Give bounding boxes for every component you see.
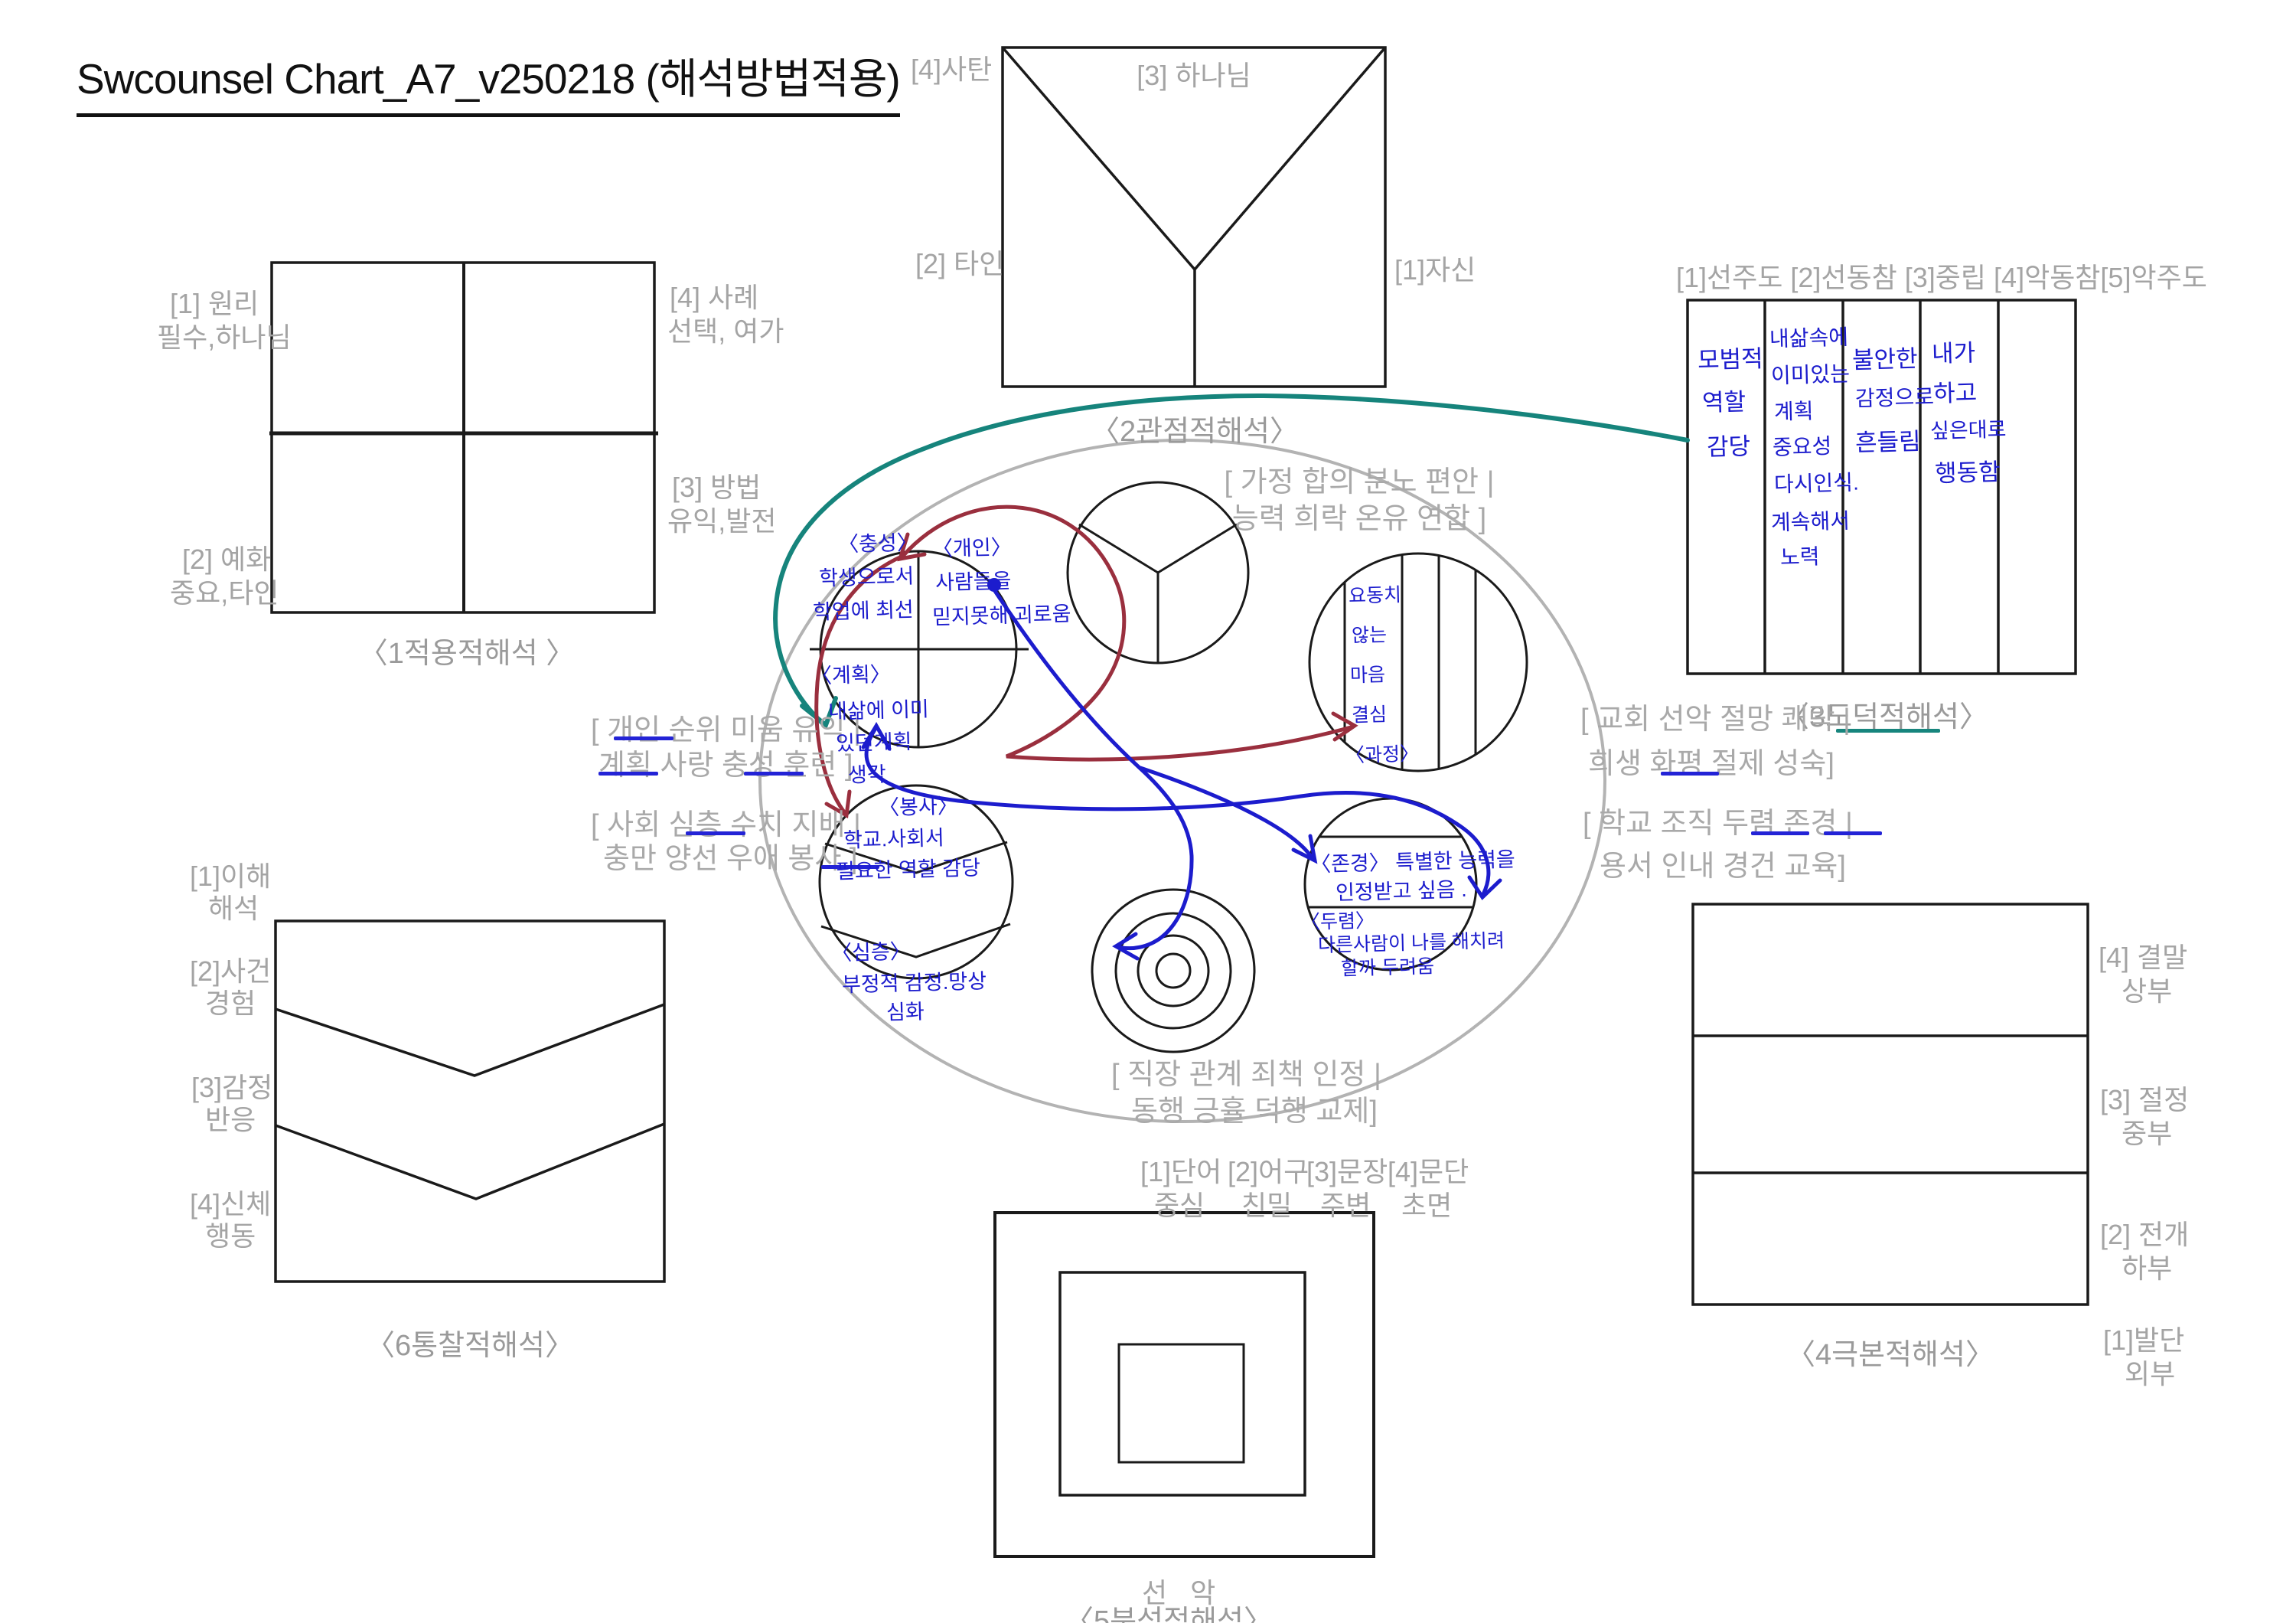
underline-jongyeong bbox=[1824, 831, 1882, 835]
d1-label-3b: 유익,발전 bbox=[667, 499, 776, 539]
d6-label-3b: 반응 bbox=[205, 1098, 256, 1138]
cB-bl-line: 내삶에 이미 bbox=[828, 692, 930, 724]
underline-gyehoek bbox=[598, 772, 658, 776]
ellipse-note-church-1: [ 교회 선악 절망 쾌락 | bbox=[1580, 695, 1851, 737]
cB-tl-line: 학생으로서 bbox=[819, 559, 915, 591]
d3-col4-line: 행동함 bbox=[1934, 452, 2001, 488]
cE-bot-line: 할까 두려움 bbox=[1341, 951, 1435, 981]
d3-col3-line: 감정으로 bbox=[1854, 380, 1934, 413]
d5-label-s3: 주변 bbox=[1320, 1184, 1371, 1223]
cE-mid-line: 인정받고 싶음 . bbox=[1336, 873, 1468, 906]
cC-bot-line: 〈심층〉 bbox=[831, 935, 912, 967]
ellipse-note-family-1: [ 가정 합의 분노 편안 | bbox=[1206, 458, 1512, 500]
d6-caption: 〈6통찰적해석〉 bbox=[317, 1321, 623, 1363]
underline-simcheung bbox=[686, 831, 745, 835]
cD-line: 요동치 bbox=[1349, 580, 1402, 609]
d3-col1-line: 역할 bbox=[1701, 382, 1746, 417]
cB-bl-line: 생각 bbox=[847, 757, 886, 788]
cD-line: 않는 bbox=[1352, 619, 1388, 648]
d3-col2-line: 중요성 bbox=[1772, 429, 1831, 462]
d3-header: [1]선주도 [2]선동참 [3]중립 [4]악동참[5]악주도 bbox=[1676, 256, 2207, 296]
perspective-rect bbox=[1003, 47, 1385, 387]
application-grid bbox=[269, 263, 658, 612]
ellipse-note-personal-2: 계획 사랑 충성 훈련 ] bbox=[598, 741, 853, 783]
underline-gaein bbox=[614, 736, 673, 740]
ellipse-note-work-1: [ 직장 관계 죄책 인정 | bbox=[1111, 1050, 1381, 1092]
d2-label-others: [2] 타인 bbox=[915, 242, 1004, 282]
d3-col4-line: 하고 bbox=[1932, 373, 1977, 408]
cB-tr-line: 믿지못해 괴로움 bbox=[932, 597, 1071, 631]
d1-label-1b: 필수,하나님 bbox=[157, 315, 292, 355]
target-circles bbox=[1092, 890, 1254, 1052]
ellipse-note-family-2: 능력 희락 온유 연합 ] bbox=[1206, 495, 1512, 537]
concentric-squares bbox=[995, 1213, 1374, 1556]
cB-bl-line: 〈계획〉 bbox=[811, 658, 892, 690]
d4-label-4b: 상부 bbox=[2122, 969, 2172, 1009]
d6-label-4b: 행동 bbox=[205, 1214, 256, 1254]
cC-bot-line: 심화 bbox=[885, 994, 925, 1025]
d6-label-1b: 해석 bbox=[208, 887, 259, 926]
cB-tl-line: 학업에 최선 bbox=[813, 593, 915, 625]
ellipse-note-work-2: 동행 긍휼 덕행 교제] bbox=[1131, 1087, 1378, 1129]
ellipse-note-school-1: [ 학교 조직 두렴 존경 | bbox=[1583, 799, 1853, 841]
d1-label-2b: 중요,타인 bbox=[170, 571, 279, 611]
underline-hwapyeong bbox=[1661, 772, 1719, 776]
d3-col1-line: 모범적 bbox=[1697, 339, 1763, 375]
cB-tr-line: 〈개인〉 bbox=[932, 531, 1013, 563]
d3-col2-line: 계속해서 bbox=[1770, 505, 1850, 537]
script-rect bbox=[1693, 904, 2088, 1305]
d5-caption: 〈5분석적해석〉 bbox=[1054, 1597, 1283, 1623]
d3-col4-line: 내가 bbox=[1931, 333, 1975, 368]
d2-label-god: [3] 하나님 bbox=[1110, 54, 1278, 93]
d3-caption-underline bbox=[1836, 729, 1940, 733]
cD-line: 결심 bbox=[1352, 699, 1388, 727]
insight-rect bbox=[276, 921, 664, 1282]
d1-label-4b: 선택, 여가 bbox=[667, 309, 784, 349]
d5-label-s4: 초면 bbox=[1401, 1184, 1452, 1223]
d4-label-1b: 외부 bbox=[2125, 1352, 2175, 1392]
cB-tr-line: 사람들을 bbox=[935, 564, 1012, 596]
d3-col1-line: 감당 bbox=[1706, 426, 1750, 462]
d5-label-s1: 중심 bbox=[1154, 1184, 1205, 1223]
d3-col2-line: 다시인식. bbox=[1773, 466, 1859, 499]
cC-top-line: 〈봉사〉 bbox=[879, 789, 959, 821]
underline-chungseong bbox=[744, 772, 804, 776]
counsel-chart-canvas: Swcounsel Chart_A7_v250218 (해석방법적용) [4]사… bbox=[0, 0, 2296, 1623]
cB-bl-line: 있던계획 bbox=[836, 725, 912, 757]
d5-label-s2: 친밀 bbox=[1241, 1184, 1292, 1223]
d3-col2-line: 노력 bbox=[1779, 540, 1820, 571]
d2-caption: 〈2관점적해석〉 bbox=[1080, 407, 1309, 449]
cC-bot-line: 부정적 감정.망상 bbox=[842, 965, 987, 998]
d2-label-satan: [4]사탄 bbox=[911, 47, 992, 87]
cD-line: 〈과정〉 bbox=[1345, 739, 1420, 769]
d3-col3-line: 흔들림 bbox=[1854, 422, 1921, 458]
d1-caption: 〈1적용적해석 〉 bbox=[298, 629, 635, 671]
page-title: Swcounsel Chart_A7_v250218 (해석방법적용) bbox=[77, 44, 900, 117]
cE-mid-line: 〈존경〉 특별한 능력을 bbox=[1310, 843, 1516, 878]
cD-line: 마음 bbox=[1350, 659, 1386, 687]
cC-top-line: 학교.사회서 bbox=[843, 821, 945, 853]
ellipse-note-school-2: 용서 인내 경건 교육] bbox=[1600, 842, 1846, 884]
cC-top-line: 필요한 역할 감당 bbox=[836, 851, 981, 885]
d3-col4-line: 싶은대로 bbox=[1930, 413, 2007, 445]
d4-label-2b: 하부 bbox=[2122, 1246, 2172, 1286]
d3-col2-line: 이미있는 bbox=[1770, 358, 1850, 390]
cB-tl-line: 〈충성〉 bbox=[838, 526, 918, 558]
d3-col2-line: 계획 bbox=[1773, 394, 1814, 426]
d3-col3-line: 불안한 bbox=[1851, 339, 1918, 375]
d6-label-2b: 경험 bbox=[205, 981, 256, 1021]
d2-label-self: [1]자신 bbox=[1394, 248, 1476, 288]
diagram-shapes-layer bbox=[0, 0, 2296, 1623]
d4-caption: 〈4극본적해석〉 bbox=[1753, 1331, 2028, 1373]
ellipse-note-social-2: 충만 양선 우애 봉사 ] bbox=[603, 834, 857, 877]
d4-label-3b: 중부 bbox=[2122, 1112, 2172, 1151]
d3-col2-line: 내삶속에 bbox=[1769, 321, 1848, 354]
underline-duryeom bbox=[1751, 831, 1809, 835]
